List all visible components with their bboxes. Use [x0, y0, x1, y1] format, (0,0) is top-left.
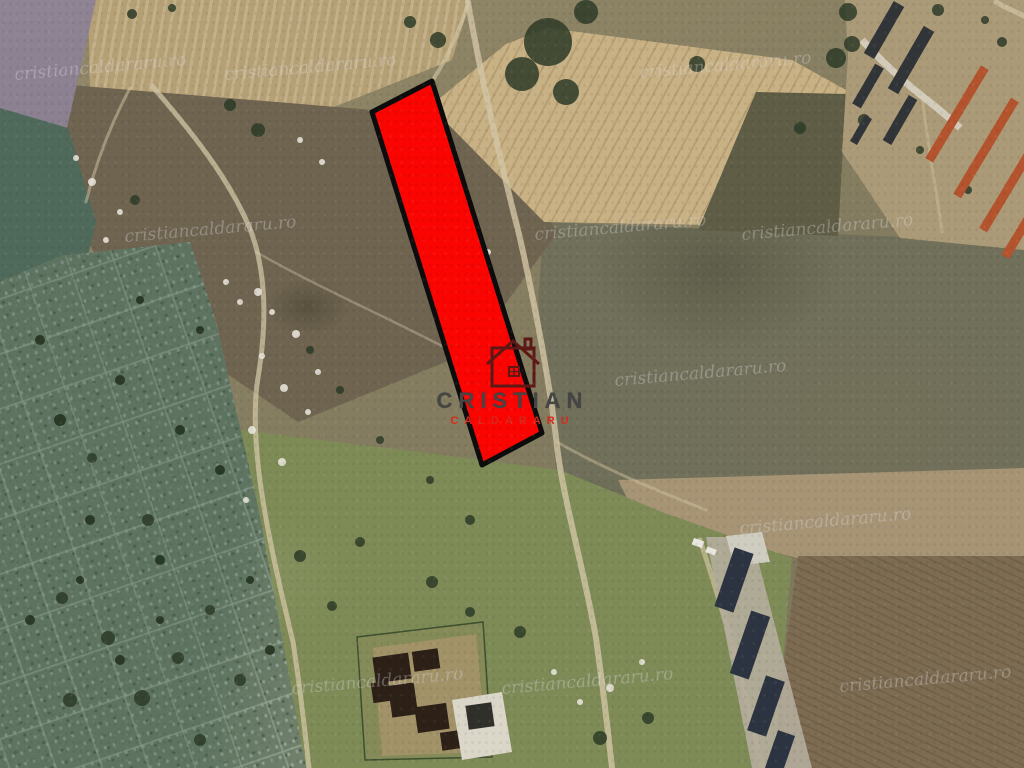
dark-roof-building — [864, 1, 904, 59]
tree — [844, 36, 860, 52]
tree — [355, 537, 365, 547]
debris-patch — [254, 288, 262, 296]
tree — [997, 37, 1007, 47]
orange-roof-building — [925, 65, 988, 162]
plot-highlight-polygon — [372, 81, 542, 465]
cemetery-tree — [196, 326, 204, 334]
cemetery-tree — [215, 465, 225, 475]
tree — [336, 386, 344, 394]
tree — [101, 631, 115, 645]
cemetery-tree — [54, 414, 66, 426]
watermark-text: cristiancaldararu.ro — [739, 504, 912, 539]
tree — [327, 601, 337, 611]
tree — [134, 690, 150, 706]
dirt-road — [152, 86, 309, 768]
cemetery-tree — [25, 615, 35, 625]
debris-patch — [269, 309, 275, 315]
debris-patch — [248, 426, 256, 434]
tree — [294, 550, 306, 562]
tree — [224, 99, 236, 111]
compound-dark-structure — [414, 703, 449, 733]
tree — [642, 712, 654, 724]
tree — [205, 605, 215, 615]
debris-patch — [237, 299, 243, 305]
compound-pad-structure — [465, 702, 494, 729]
debris-patch — [315, 369, 321, 375]
tree — [524, 18, 572, 66]
watermark-text: cristiancaldararu.ro — [639, 48, 812, 83]
watermark-text: cristiancaldararu.ro — [614, 356, 787, 391]
tree — [234, 674, 246, 686]
tree — [404, 16, 416, 28]
tree — [194, 734, 206, 746]
tree — [430, 32, 446, 48]
tree — [251, 123, 265, 137]
watermark-text: cristiancaldararu.ro — [741, 210, 914, 245]
tree — [932, 4, 944, 16]
watermark-text: cristiancaldararu.ro — [14, 50, 187, 85]
tree — [465, 607, 475, 617]
tree — [514, 626, 526, 638]
tree — [839, 3, 857, 21]
tree — [426, 476, 434, 484]
tree — [465, 515, 475, 525]
debris-patch — [639, 659, 645, 665]
debris-patch — [280, 384, 288, 392]
debris-patch — [243, 497, 249, 503]
debris-patch — [103, 237, 109, 243]
cemetery-tree — [35, 335, 45, 345]
cemetery-tree — [175, 425, 185, 435]
cemetery-tree — [85, 515, 95, 525]
cemetery-tree — [115, 375, 125, 385]
tree — [593, 731, 607, 745]
tree — [172, 652, 184, 664]
truck — [692, 538, 705, 548]
cemetery-tree — [156, 616, 164, 624]
tree — [127, 9, 137, 19]
cemetery-tree — [246, 576, 254, 584]
cemetery-tree — [155, 555, 165, 565]
dirt-road — [996, 2, 1024, 16]
debris-patch — [297, 137, 303, 143]
map-features-layer: cristiancaldararu.rocristiancaldararu.ro… — [0, 0, 1024, 768]
debris-patch — [319, 159, 325, 165]
debris-patch — [223, 279, 229, 285]
watermark-text: cristiancaldararu.ro — [224, 50, 397, 85]
debris-patch — [278, 458, 286, 466]
tree — [505, 57, 539, 91]
tree — [87, 453, 97, 463]
cemetery-tree — [76, 576, 84, 584]
tree — [916, 146, 924, 154]
dirt-road — [557, 442, 706, 510]
tree — [168, 4, 176, 12]
cemetery-tree — [265, 645, 275, 655]
debris-patch — [305, 409, 311, 415]
debris-patch — [577, 699, 583, 705]
debris-patch — [73, 155, 79, 161]
tree — [56, 592, 68, 604]
tree — [142, 514, 154, 526]
debris-patch — [292, 330, 300, 338]
watermark-text: cristiancaldararu.ro — [839, 662, 1012, 697]
tree — [826, 48, 846, 68]
tree — [130, 195, 140, 205]
watermark-text: cristiancaldararu.ro — [124, 212, 297, 247]
tree — [426, 576, 438, 588]
tree — [306, 346, 314, 354]
tree — [63, 693, 77, 707]
cemetery-tree — [115, 655, 125, 665]
tree — [981, 16, 989, 24]
watermark-text: cristiancaldararu.ro — [501, 664, 674, 699]
tree — [553, 79, 579, 105]
debris-patch — [117, 209, 123, 215]
watermark-text: cristiancaldararu.ro — [534, 210, 707, 245]
debris-patch — [259, 353, 265, 359]
dirt-road — [922, 96, 942, 232]
dark-roof-building — [852, 64, 884, 109]
satellite-map-image: cristiancaldararu.rocristiancaldararu.ro… — [0, 0, 1024, 768]
dark-roof-building — [883, 95, 918, 145]
debris-patch — [88, 178, 96, 186]
tree — [574, 0, 598, 24]
tree — [794, 122, 806, 134]
tree — [376, 436, 384, 444]
cemetery-tree — [136, 296, 144, 304]
